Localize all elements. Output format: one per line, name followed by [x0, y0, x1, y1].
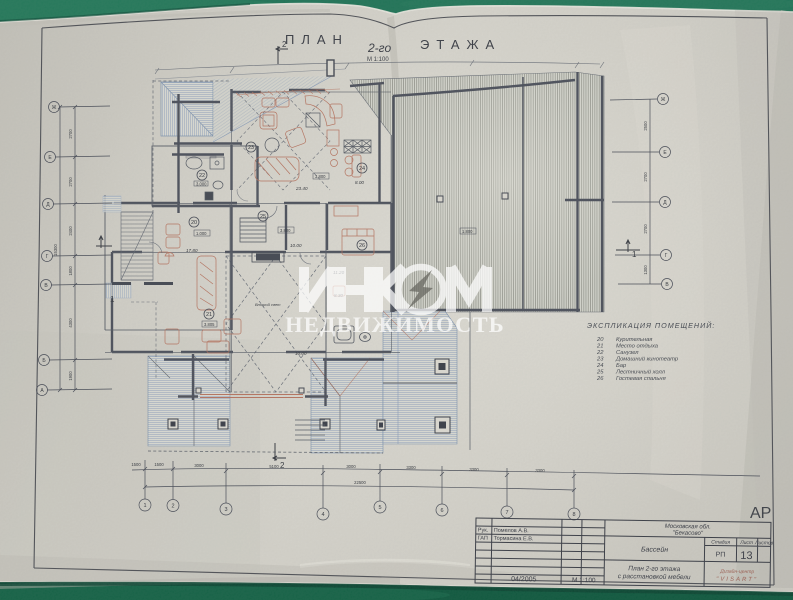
svg-text:2: 2 — [171, 504, 174, 510]
svg-text:2500: 2500 — [643, 121, 648, 131]
svg-text:04/2005: 04/2005 — [511, 576, 537, 583]
svg-text:5100: 5100 — [269, 464, 279, 469]
svg-text:4300: 4300 — [68, 318, 73, 328]
svg-text:Бассейн: Бассейн — [641, 545, 668, 553]
svg-text:3.000: 3.000 — [196, 182, 207, 187]
svg-text:3300: 3300 — [535, 468, 545, 473]
svg-text:Ж: Ж — [661, 97, 666, 103]
svg-text:7: 7 — [505, 510, 508, 516]
svg-text:6: 6 — [440, 508, 443, 514]
svg-text:1.000: 1.000 — [196, 231, 207, 236]
svg-text:Лист: Лист — [739, 540, 753, 546]
svg-text:1: 1 — [632, 250, 637, 259]
svg-text:20: 20 — [596, 337, 604, 343]
svg-text:2700: 2700 — [643, 172, 648, 182]
svg-text:3300: 3300 — [469, 467, 479, 472]
svg-text:15300: 15300 — [53, 244, 58, 256]
svg-text:ПЛАН: ПЛАН — [285, 32, 349, 47]
svg-text:Помелов А.В.: Помелов А.В. — [494, 528, 529, 535]
svg-text:1.800: 1.800 — [462, 229, 473, 234]
svg-text:2700: 2700 — [68, 177, 73, 187]
svg-text:Рук.: Рук. — [478, 528, 489, 534]
svg-text:ЭКСПЛИКАЦИЯ ПОМЕЩЕНИЙ:: ЭКСПЛИКАЦИЯ ПОМЕЩЕНИЙ: — [587, 321, 715, 330]
svg-text:Курительная: Курительная — [616, 337, 652, 343]
svg-text:3300: 3300 — [406, 465, 416, 470]
svg-text:Дизайн-центр: Дизайн-центр — [719, 568, 754, 576]
svg-text:8.00: 8.00 — [355, 180, 364, 185]
svg-text:24: 24 — [596, 363, 603, 369]
svg-text:22: 22 — [596, 350, 604, 356]
svg-text:1500: 1500 — [154, 462, 164, 467]
svg-text:Домашний кинотеатр: Домашний кинотеатр — [615, 356, 679, 363]
svg-text:25: 25 — [260, 214, 266, 220]
svg-text:Стадия: Стадия — [711, 539, 730, 545]
svg-text:13: 13 — [740, 550, 752, 562]
svg-text:Место отдыха: Место отдыха — [616, 344, 659, 350]
svg-text:ГАП: ГАП — [478, 536, 488, 542]
svg-text:26: 26 — [359, 243, 365, 249]
svg-text:Листов: Листов — [754, 540, 774, 546]
svg-text:21: 21 — [206, 312, 212, 318]
svg-text:Второй свет: Второй свет — [255, 302, 281, 307]
svg-text:Санузел: Санузел — [616, 350, 639, 356]
svg-text:8: 8 — [572, 512, 575, 518]
svg-text:22500: 22500 — [354, 480, 366, 485]
svg-text:2700: 2700 — [643, 224, 648, 234]
svg-text:3000: 3000 — [346, 464, 356, 469]
svg-text:23.40: 23.40 — [295, 186, 308, 191]
svg-text:1900: 1900 — [68, 371, 73, 381]
svg-text:26: 26 — [596, 376, 604, 382]
svg-text:22: 22 — [199, 173, 205, 179]
svg-text:1800: 1800 — [68, 266, 73, 276]
svg-text:АР: АР — [750, 505, 771, 522]
svg-text:5: 5 — [378, 505, 381, 511]
svg-text:21: 21 — [596, 344, 603, 350]
svg-text:Г: Г — [665, 253, 668, 259]
svg-text:3: 3 — [224, 507, 227, 513]
svg-text:17.80: 17.80 — [186, 248, 198, 253]
svg-text:23: 23 — [248, 145, 254, 151]
svg-text:1500: 1500 — [131, 462, 141, 467]
svg-text:23: 23 — [596, 357, 604, 363]
svg-text:Г: Г — [46, 254, 49, 260]
svg-text:3.805: 3.805 — [204, 322, 215, 327]
svg-text:3.800: 3.800 — [315, 174, 326, 179]
svg-text:25: 25 — [596, 370, 604, 376]
svg-text:"Бекасово": "Бекасово" — [673, 530, 704, 536]
svg-text:НЕДВИЖИМОСТЬ: НЕДВИЖИМОСТЬ — [285, 312, 505, 337]
svg-text:Тормасина Е.В.: Тормасина Е.В. — [494, 536, 534, 543]
svg-text:ЭТАЖА: ЭТАЖА — [420, 37, 501, 52]
svg-text:1300: 1300 — [643, 265, 648, 275]
svg-text:М 1:100: М 1:100 — [572, 577, 596, 584]
svg-text:3.800: 3.800 — [280, 228, 291, 233]
svg-text:1: 1 — [143, 503, 146, 509]
svg-text:План 2-го этажа: План 2-го этажа — [628, 565, 680, 573]
svg-text:Бар: Бар — [616, 363, 627, 369]
svg-text:с расстановкой мебели: с расстановкой мебели — [618, 572, 691, 581]
svg-text:М 1:100: М 1:100 — [367, 57, 389, 63]
svg-text:24: 24 — [359, 166, 365, 172]
svg-text:3000: 3000 — [194, 463, 204, 468]
svg-text:4: 4 — [321, 512, 324, 518]
svg-text:"VISART": "VISART" — [716, 577, 758, 584]
svg-text:Гостевая спальня: Гостевая спальня — [616, 376, 666, 382]
svg-text:Ж: Ж — [52, 105, 57, 111]
svg-text:Лестничный холл: Лестничный холл — [615, 369, 666, 376]
svg-text:10.00: 10.00 — [290, 243, 302, 248]
svg-text:2400: 2400 — [68, 226, 73, 236]
svg-text:2700: 2700 — [68, 129, 73, 139]
svg-text:20: 20 — [191, 220, 197, 226]
svg-text:2-го: 2-го — [367, 41, 391, 55]
svg-text:1: 1 — [110, 295, 115, 304]
svg-text:РП: РП — [716, 552, 726, 559]
svg-text:10.00: 10.00 — [295, 351, 307, 356]
svg-text:2: 2 — [280, 461, 285, 470]
